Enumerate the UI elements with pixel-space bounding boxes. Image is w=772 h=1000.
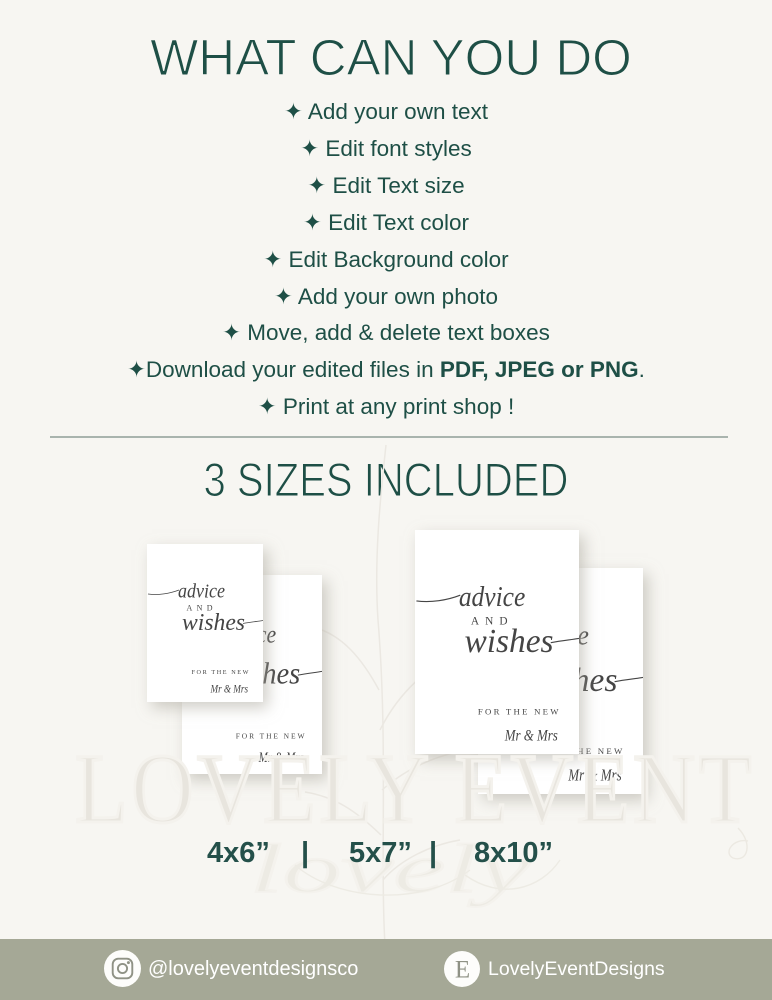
svg-text:E: E (455, 957, 470, 984)
svg-text:LOVELY EVENT: LOVELY EVENT (75, 740, 755, 844)
